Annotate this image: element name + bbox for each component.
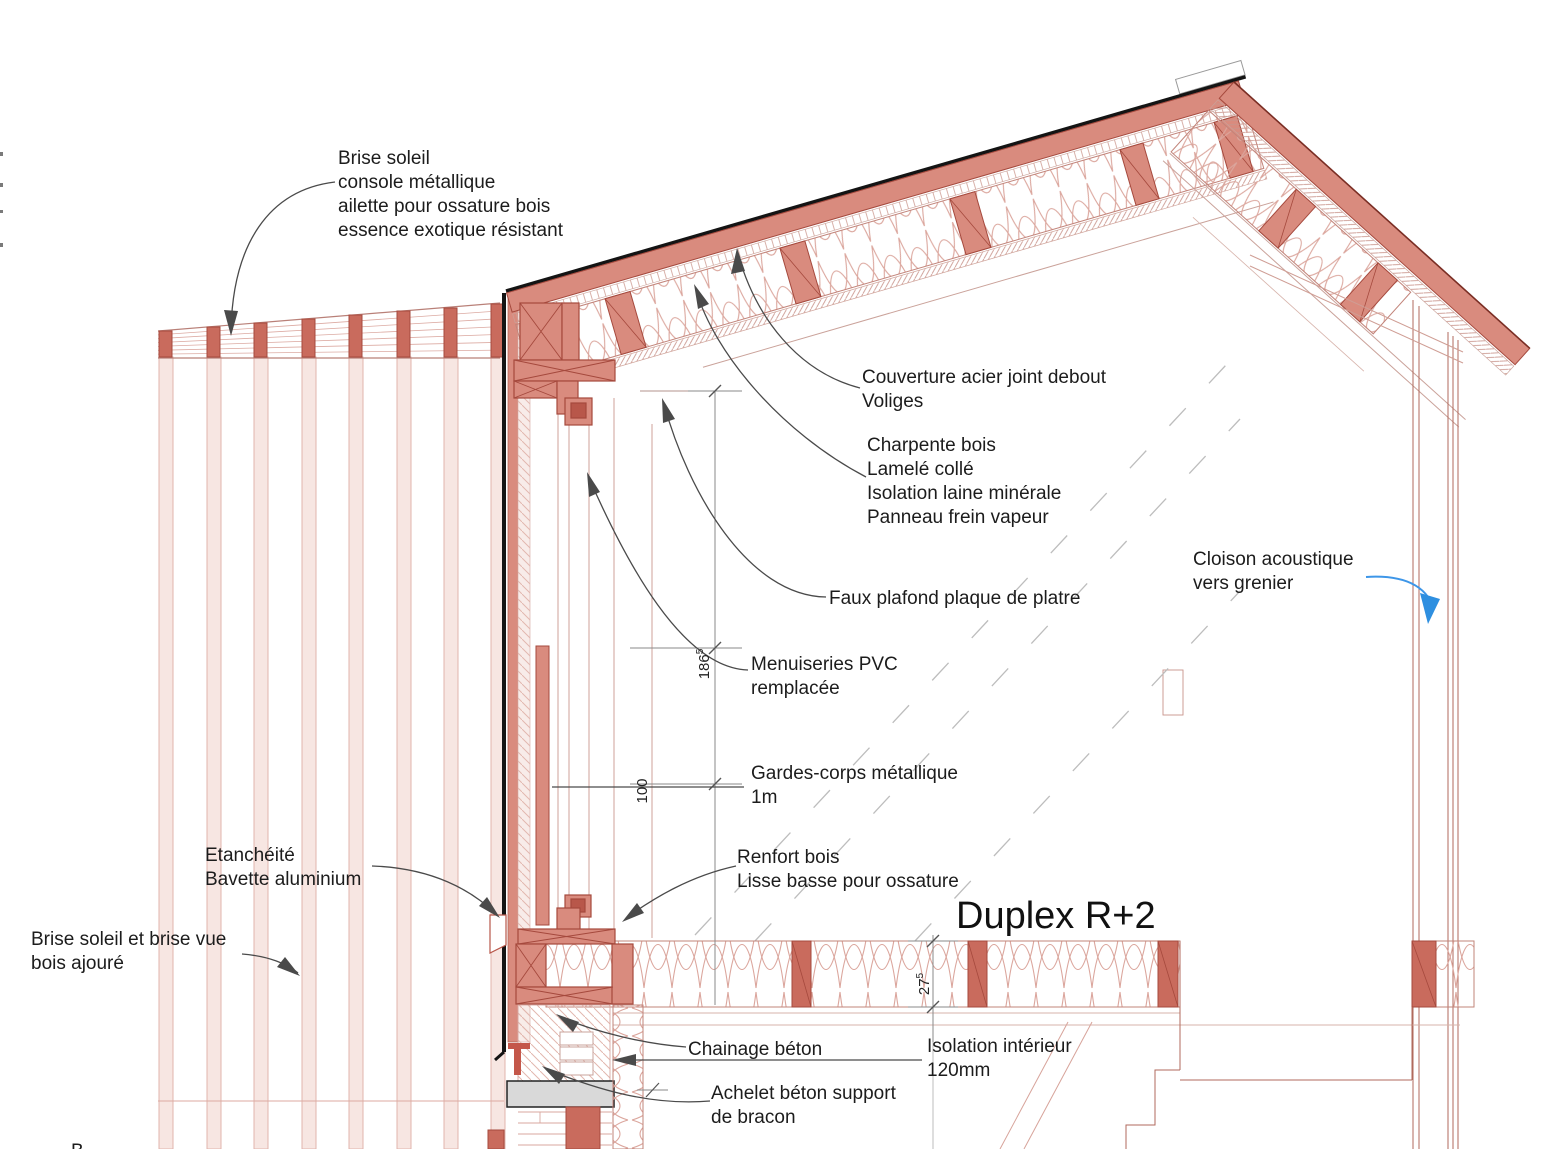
label-charpente: Charpente bois Lamelé collé Isolation la… xyxy=(867,434,1061,530)
label-gardes-corps: Gardes-corps métallique 1m xyxy=(751,762,958,810)
label-menuiseries: Menuiseries PVC remplacée xyxy=(751,653,898,701)
blue-leader xyxy=(1366,577,1440,624)
roof-right-slope xyxy=(1148,82,1529,443)
label-renfort-bois: Renfort bois Lisse basse pour ossature xyxy=(737,846,959,894)
left-margin-marks xyxy=(0,152,3,247)
brise-soleil-slats xyxy=(158,303,505,1149)
section-drawing-canvas: Brise soleil console métallique ailette … xyxy=(0,0,1549,1149)
garde-corps-post xyxy=(536,646,549,925)
roof-left-slope xyxy=(501,60,1281,413)
right-wall xyxy=(1163,255,1463,1149)
partial-bottom-label: B xyxy=(71,1141,84,1149)
label-couverture: Couverture acier joint debout Voliges xyxy=(862,366,1106,414)
dimension-186-5: 1865 xyxy=(695,634,713,694)
dimension-100: 100 xyxy=(633,761,651,821)
label-isolation-interieur: Isolation intérieur 120mm xyxy=(927,1035,1072,1083)
label-etancheite: Etanchéité Bavette aluminium xyxy=(205,844,361,892)
label-cloison-acoustique: Cloison acoustique vers grenier xyxy=(1193,548,1354,596)
label-achelet: Achelet béton support de bracon xyxy=(711,1082,896,1130)
dimension-27-5: 275 xyxy=(915,954,933,1014)
floor-band xyxy=(546,941,1474,1025)
label-faux-plafond: Faux plafond plaque de platre xyxy=(829,587,1080,611)
label-brise-vue: Brise soleil et brise vue bois ajouré xyxy=(31,928,226,976)
label-brise-soleil: Brise soleil console métallique ailette … xyxy=(338,147,563,243)
label-chainage: Chainage béton xyxy=(688,1038,822,1062)
level-title: Duplex R+2 xyxy=(956,896,1156,936)
